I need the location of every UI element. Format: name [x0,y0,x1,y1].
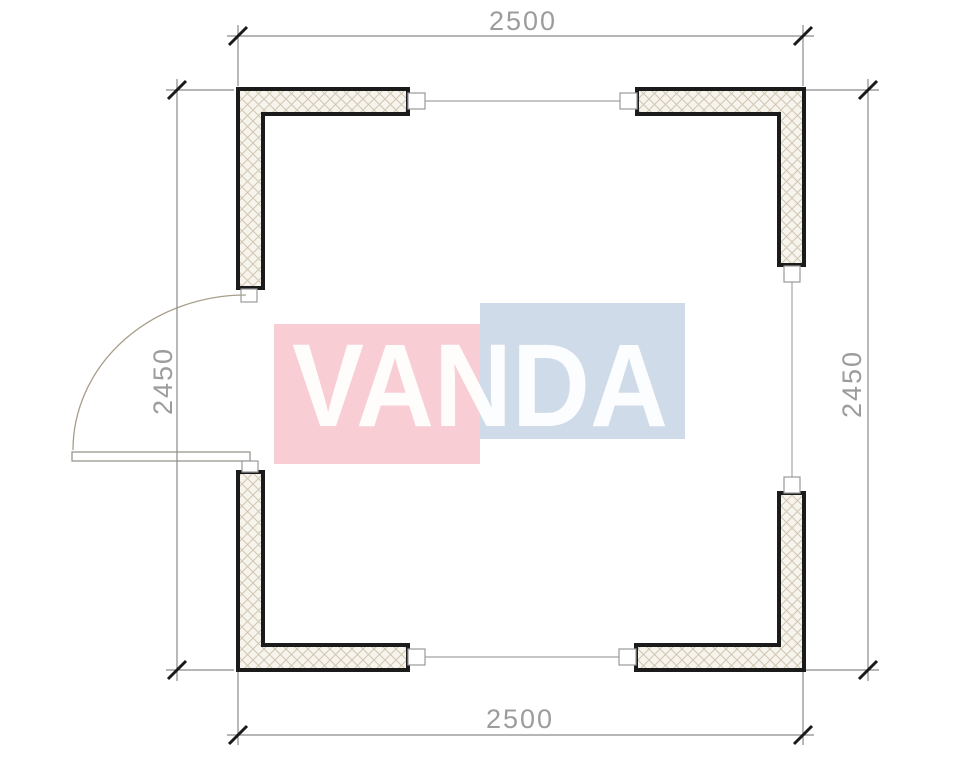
window-right-connector-top [784,266,800,282]
dimension-top-label: 2500 [489,6,557,36]
dimension-bottom: 2500 [227,672,814,745]
dimension-top: 2500 [227,6,814,86]
wall-bottom-right [636,493,804,670]
dimension-right: 2450 [806,79,879,681]
door-leaf [72,452,250,461]
floor-plan-page: VANDA [0,0,960,768]
floor-plan-canvas: VANDA [0,0,960,768]
door-connector-bottom [242,461,258,472]
wall-top-left [238,89,408,288]
dimension-right-label: 2450 [837,350,867,418]
watermark-text: VANDA [292,320,668,452]
window-top-connector-left [408,93,425,109]
dimension-left-label: 2450 [148,347,178,415]
watermark: VANDA [274,303,685,464]
window-bottom-connector-right [619,649,636,665]
window-right-connector-bottom [784,477,800,493]
wall-top-right [637,89,804,265]
dimension-bottom-label: 2500 [486,704,554,734]
window-bottom-connector-left [408,649,425,665]
dimension-left: 2450 [148,79,234,681]
window-top-connector-right [620,93,637,109]
wall-bottom-left [238,472,408,670]
